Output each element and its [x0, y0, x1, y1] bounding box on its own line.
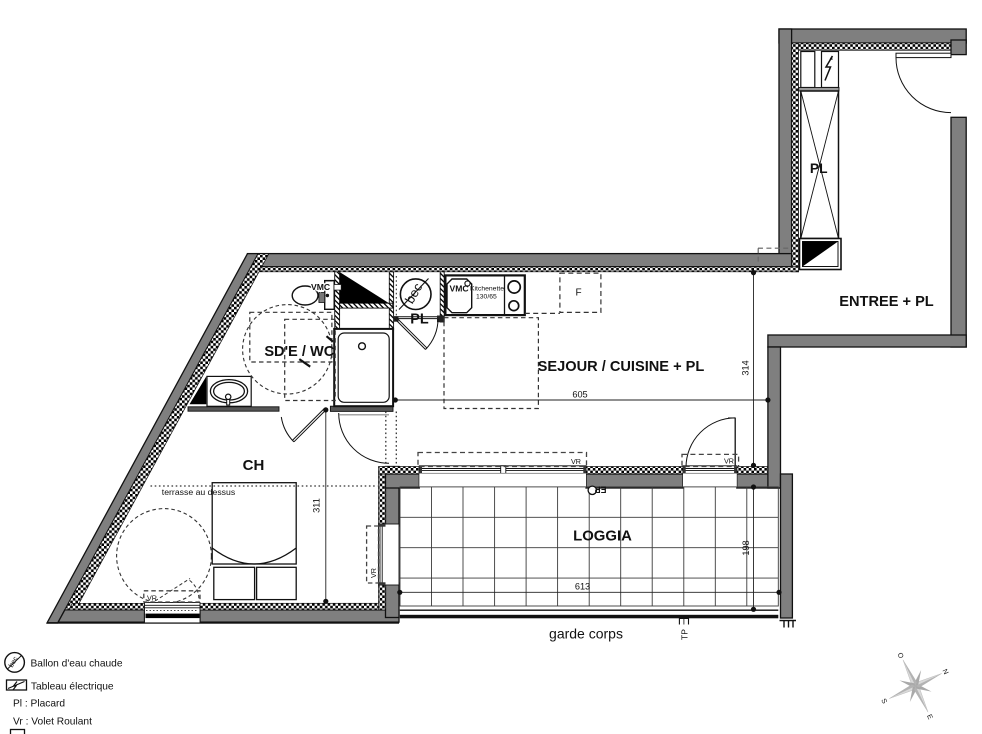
svg-text:VMC: VMC [311, 282, 330, 292]
svg-text:PL: PL [410, 311, 429, 327]
svg-text:VR: VR [369, 568, 378, 578]
svg-text:Pl : Placard: Pl : Placard [13, 698, 65, 709]
svg-text:EP: EP [595, 485, 607, 495]
svg-text:130/65: 130/65 [476, 294, 497, 301]
svg-text:Tableau électrique: Tableau électrique [31, 681, 114, 692]
svg-text:F: F [575, 288, 581, 299]
svg-text:311: 311 [312, 498, 322, 513]
svg-text:VR: VR [724, 457, 734, 466]
svg-text:198: 198 [741, 540, 751, 555]
svg-text:PL: PL [810, 161, 828, 176]
svg-text:ENTREE + PL: ENTREE + PL [839, 294, 934, 310]
svg-text:VR: VR [571, 457, 581, 466]
svg-text:SD'E / WC: SD'E / WC [264, 344, 334, 360]
svg-text:Ballon d'eau chaude: Ballon d'eau chaude [31, 658, 123, 669]
svg-text:SEJOUR / CUISINE + PL: SEJOUR / CUISINE + PL [538, 359, 705, 375]
svg-text:garde corps: garde corps [549, 626, 623, 642]
svg-text:605: 605 [572, 390, 587, 400]
svg-text:Kitchenette: Kitchenette [470, 286, 504, 293]
svg-text:Vr : Volet Roulant: Vr : Volet Roulant [13, 717, 92, 728]
svg-text:VR: VR [147, 593, 157, 602]
svg-text:VMC: VMC [450, 283, 469, 293]
svg-text:LOGGIA: LOGGIA [573, 529, 632, 545]
svg-text:CH: CH [243, 457, 265, 474]
svg-text:613: 613 [575, 582, 590, 592]
svg-text:TP: TP [680, 629, 690, 640]
svg-text:terrasse au dessus: terrasse au dessus [162, 487, 236, 497]
svg-text:314: 314 [740, 360, 750, 375]
